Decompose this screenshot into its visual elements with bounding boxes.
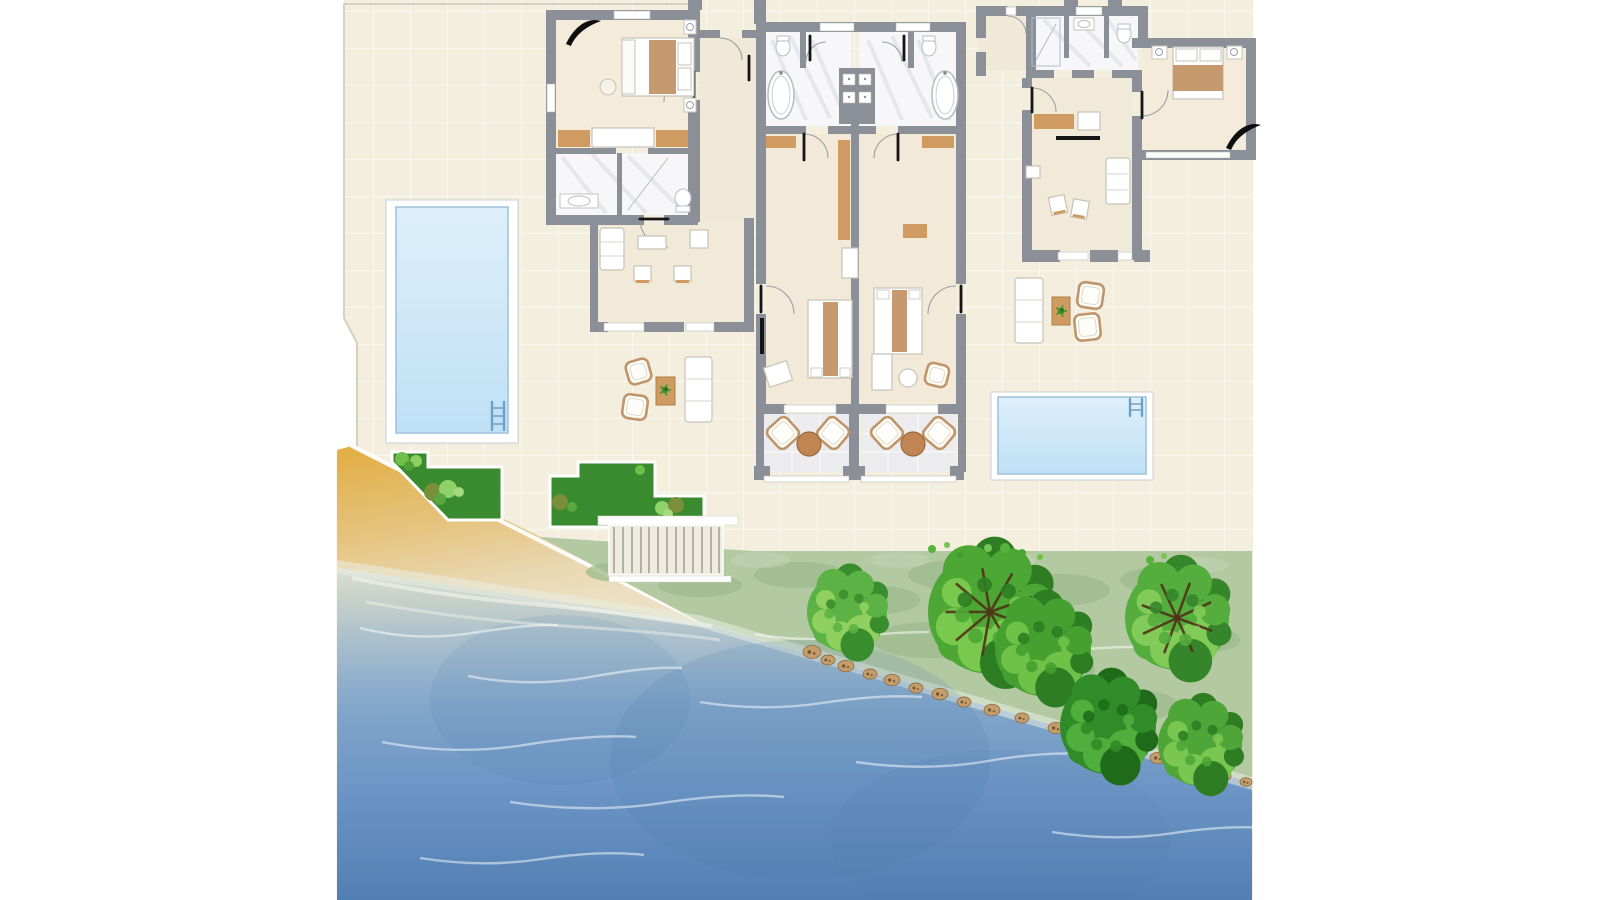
- wall-tv: [760, 318, 764, 354]
- tree-foliage: [1055, 655, 1067, 667]
- tree-foliage: [1091, 739, 1103, 751]
- terrace-table: [901, 432, 925, 456]
- stair-tread: [613, 527, 615, 573]
- wall: [1108, 0, 1122, 8]
- closet: [656, 130, 688, 147]
- stairs-landing: [598, 516, 738, 525]
- wall: [1064, 16, 1069, 58]
- window: [820, 23, 854, 31]
- bed-pillow: [840, 368, 850, 377]
- hall-rug: [838, 140, 850, 240]
- wall: [976, 52, 986, 76]
- coffee-table: [638, 236, 666, 249]
- bed-pillow: [678, 68, 691, 90]
- armchair: [924, 362, 951, 389]
- floor-plan-illustration: [0, 0, 1600, 900]
- wall: [590, 222, 598, 330]
- desk: [1026, 166, 1040, 178]
- toilet-tank: [923, 36, 935, 41]
- wall: [1112, 70, 1142, 78]
- rock-speckle: [1243, 781, 1245, 783]
- rock: [932, 688, 948, 700]
- rock: [1240, 778, 1252, 787]
- rock-speckle: [993, 710, 995, 712]
- wall: [1026, 70, 1054, 78]
- tree-foliage: [977, 577, 992, 592]
- window: [604, 323, 644, 331]
- tree-foliage: [1083, 711, 1095, 723]
- tree-foliage: [1159, 632, 1171, 644]
- bed-blanket: [1173, 65, 1223, 91]
- tree-foliage: [857, 618, 867, 628]
- tree-foliage: [1081, 723, 1093, 735]
- window: [614, 11, 650, 19]
- chair-frame: [624, 357, 652, 385]
- chair-frame: [1074, 313, 1102, 341]
- dining-chair: [674, 266, 691, 281]
- rock-speckle: [825, 659, 828, 662]
- tree-foliage: [1001, 584, 1016, 599]
- rock-speckle: [829, 660, 831, 662]
- rock-speckle: [1023, 718, 1025, 720]
- rock-speckle: [1247, 782, 1249, 784]
- tree-foliage: [1026, 661, 1038, 673]
- wall: [756, 414, 764, 472]
- chair-frame: [1076, 281, 1104, 309]
- tree-foliage: [1150, 601, 1162, 613]
- rock-speckle: [1057, 728, 1059, 730]
- tub-faucet: [779, 71, 783, 75]
- leaf-sprig: [1037, 554, 1043, 560]
- lamp: [687, 24, 694, 31]
- shelf-dot: [848, 96, 850, 98]
- tree-foliage: [1117, 704, 1129, 716]
- bed-pillow: [678, 43, 691, 65]
- window: [1006, 7, 1016, 15]
- chair-seat-tan: [636, 280, 649, 283]
- wall: [1246, 38, 1256, 160]
- stair-tread: [666, 527, 668, 573]
- right-pool-water: [998, 397, 1146, 474]
- entry-corridor-floor: [698, 38, 756, 222]
- stair-tread: [657, 527, 659, 573]
- stair-tread: [692, 527, 694, 573]
- tree-foliage: [839, 590, 849, 600]
- tree-foliage: [1100, 745, 1140, 785]
- rock-speckle: [893, 680, 895, 682]
- rock: [984, 704, 1000, 716]
- bank-mottle-light: [870, 552, 930, 568]
- closet: [1034, 114, 1074, 129]
- stair-tread: [648, 527, 650, 573]
- tree-foliage: [1120, 733, 1132, 745]
- rock-speckle: [871, 674, 873, 676]
- wall-tv: [1056, 136, 1100, 140]
- window: [1118, 252, 1132, 260]
- wall: [648, 148, 698, 154]
- wall: [688, 0, 702, 10]
- leaf-sprig: [928, 545, 936, 553]
- rock: [909, 683, 923, 693]
- rock-speckle: [936, 692, 939, 695]
- rock: [821, 655, 835, 665]
- dresser: [592, 128, 654, 147]
- tree-foliage: [958, 592, 973, 607]
- tree-foliage: [1045, 662, 1057, 674]
- leaf-sprig: [1161, 553, 1167, 559]
- rock: [803, 646, 821, 659]
- rock: [838, 660, 854, 672]
- toilet-tank: [1118, 24, 1130, 29]
- rock-speckle: [813, 652, 816, 655]
- wall: [938, 404, 966, 414]
- leaf-sprig: [1000, 543, 1010, 553]
- rock: [1015, 713, 1029, 723]
- tree-foliage: [1178, 731, 1188, 741]
- tree-foliage: [1190, 626, 1202, 638]
- wall: [756, 22, 966, 32]
- stair-tread: [718, 527, 720, 573]
- rock-speckle: [808, 650, 812, 654]
- leaf-sprig: [944, 542, 950, 548]
- bed-pillow: [909, 290, 920, 299]
- rock-speckle: [867, 673, 870, 676]
- rock: [884, 674, 900, 686]
- wall: [836, 404, 864, 414]
- stair-tread: [710, 527, 712, 573]
- wall: [956, 314, 966, 414]
- wall: [958, 414, 966, 472]
- rock-speckle: [913, 687, 916, 690]
- rock-speckle: [1052, 726, 1055, 729]
- rock-speckle: [847, 666, 849, 668]
- window: [547, 84, 555, 112]
- wall: [1104, 16, 1109, 58]
- wall: [976, 6, 1008, 16]
- toilet-tank: [676, 206, 690, 212]
- wall: [617, 153, 622, 215]
- wall: [1022, 250, 1060, 262]
- wall: [956, 22, 966, 284]
- shelf-dot: [864, 78, 866, 80]
- tree-foliage: [1033, 621, 1045, 633]
- window: [764, 476, 849, 482]
- cabinet: [690, 230, 708, 248]
- rock: [863, 669, 877, 679]
- wall: [546, 10, 556, 218]
- rock-speckle: [961, 701, 964, 704]
- tree-foliage: [955, 608, 970, 623]
- tree-foliage: [1191, 720, 1201, 730]
- tree-foliage: [859, 602, 869, 612]
- bush: [404, 461, 414, 471]
- floor-plan-scene: [0, 0, 1600, 900]
- tree-foliage: [849, 624, 859, 634]
- lounge-chair: [624, 357, 652, 385]
- wall: [828, 126, 852, 134]
- rock-speckle: [888, 678, 891, 681]
- stairs-base: [609, 576, 731, 582]
- lounge-chair: [1074, 313, 1102, 341]
- stair-tread: [622, 527, 624, 573]
- tree-foliage: [1193, 761, 1228, 796]
- bed-pillow: [1176, 49, 1197, 61]
- bush: [567, 502, 577, 512]
- side-table: [899, 369, 917, 387]
- tree-foliage: [1016, 645, 1028, 657]
- tree-foliage: [1210, 750, 1220, 760]
- left-pool-water: [396, 207, 508, 433]
- tree-foliage: [1185, 755, 1195, 765]
- leaf-sprig: [1146, 556, 1154, 564]
- wall: [849, 414, 859, 472]
- tree-foliage: [1193, 605, 1205, 617]
- tree-foliage: [1166, 589, 1178, 601]
- wall: [756, 22, 766, 284]
- wall: [754, 0, 766, 24]
- bush: [552, 494, 568, 510]
- tree-foliage: [968, 628, 983, 643]
- leaf-sprig: [1018, 549, 1026, 557]
- shelf-dot: [848, 78, 850, 80]
- tub-faucet: [943, 71, 947, 75]
- closet: [558, 130, 590, 147]
- bath-sink-counter: [1074, 18, 1094, 30]
- tree-foliage: [826, 599, 836, 609]
- wall: [546, 148, 616, 154]
- rock-speckle: [917, 688, 919, 690]
- window: [1146, 152, 1230, 158]
- leaf-sprig: [984, 544, 992, 552]
- chair-seat-tan: [676, 280, 689, 283]
- tree-foliage: [1179, 634, 1191, 646]
- window: [686, 323, 714, 331]
- wall: [1022, 110, 1032, 260]
- wall: [1022, 78, 1032, 88]
- rock-speckle: [842, 664, 845, 667]
- wall: [1132, 158, 1142, 260]
- wall: [1090, 250, 1118, 262]
- tree-trunk: [987, 609, 993, 615]
- leaf-sprig: [957, 552, 963, 558]
- window: [1058, 252, 1088, 260]
- wall: [1132, 78, 1142, 92]
- chair-frame: [621, 393, 648, 420]
- bank-mottle-light: [730, 552, 790, 568]
- terrace-table: [797, 432, 821, 456]
- toilet-tank: [777, 36, 789, 41]
- shelf-dot: [864, 96, 866, 98]
- tree-foliage: [1186, 594, 1198, 606]
- plant-center: [1060, 308, 1063, 311]
- tree-foliage: [1052, 626, 1064, 638]
- bed-blanket: [649, 40, 676, 94]
- bed-blanket: [892, 290, 907, 352]
- lounge-chair: [621, 393, 648, 420]
- bush: [434, 493, 446, 505]
- bed-pillow: [1200, 49, 1221, 61]
- rock-speckle: [1154, 756, 1157, 759]
- tree-foliage: [1123, 714, 1135, 726]
- wall: [644, 322, 684, 332]
- rock-speckle: [1019, 717, 1022, 720]
- bed-bench: [622, 40, 635, 94]
- bench: [842, 248, 858, 278]
- dining-chair: [634, 266, 651, 281]
- window: [861, 476, 956, 482]
- sofa: [600, 228, 624, 270]
- wall: [756, 404, 786, 414]
- tree-foliage: [840, 628, 874, 662]
- stair-tread: [683, 527, 685, 573]
- chair-frame: [924, 362, 951, 389]
- sofa: [1106, 158, 1130, 204]
- bush: [454, 487, 464, 497]
- stair-tread: [631, 527, 633, 573]
- wall: [664, 215, 698, 225]
- bed-pillow: [877, 290, 889, 299]
- toilet: [675, 189, 691, 207]
- cabinet: [872, 354, 892, 390]
- tree-foliage: [1018, 633, 1030, 645]
- sofa: [685, 357, 712, 422]
- bed-pillow: [811, 368, 822, 377]
- wall: [1072, 70, 1094, 78]
- lamp: [1156, 49, 1163, 56]
- bush: [635, 465, 645, 475]
- sea-depth-shadow: [430, 615, 690, 785]
- tree-foliage: [1213, 734, 1223, 744]
- tree-foliage: [833, 623, 843, 633]
- tree-foliage: [1110, 740, 1122, 752]
- wall: [858, 126, 876, 134]
- rock-speckle: [965, 702, 967, 704]
- window: [1076, 7, 1102, 15]
- stair-tread: [640, 527, 642, 573]
- window: [784, 405, 836, 413]
- wall: [744, 218, 754, 332]
- closet: [922, 136, 954, 148]
- wall: [700, 30, 720, 38]
- plant-center: [664, 387, 667, 390]
- rock: [957, 697, 971, 707]
- wall: [742, 30, 756, 38]
- lamp: [687, 102, 694, 109]
- tree-foliage: [824, 609, 834, 619]
- closet: [766, 136, 796, 148]
- rock-speckle: [988, 708, 991, 711]
- sofa: [1015, 278, 1043, 343]
- wall: [898, 126, 956, 134]
- bed-blanket: [823, 302, 838, 376]
- wall: [800, 32, 806, 68]
- tree-foliage: [1058, 636, 1070, 648]
- white-margin-wedge: [336, 0, 357, 452]
- tree-foliage: [1147, 614, 1159, 626]
- stool: [600, 79, 616, 95]
- tree-foliage: [854, 594, 864, 604]
- wall: [766, 126, 806, 134]
- lounge-chair: [1076, 281, 1104, 309]
- tree-foliage: [1098, 699, 1110, 711]
- stair-tread: [701, 527, 703, 573]
- cabinet: [1078, 112, 1100, 130]
- lamp: [1231, 49, 1238, 56]
- window: [886, 405, 938, 413]
- wall: [862, 404, 886, 414]
- wall: [908, 32, 914, 68]
- hall-rug: [903, 224, 927, 238]
- tree-trunk: [1174, 615, 1180, 621]
- window: [896, 23, 930, 31]
- rock-speckle: [941, 694, 943, 696]
- tree-foliage: [1207, 725, 1217, 735]
- stair-tread: [675, 527, 677, 573]
- tree-foliage: [1176, 741, 1186, 751]
- tree-foliage: [1202, 757, 1212, 767]
